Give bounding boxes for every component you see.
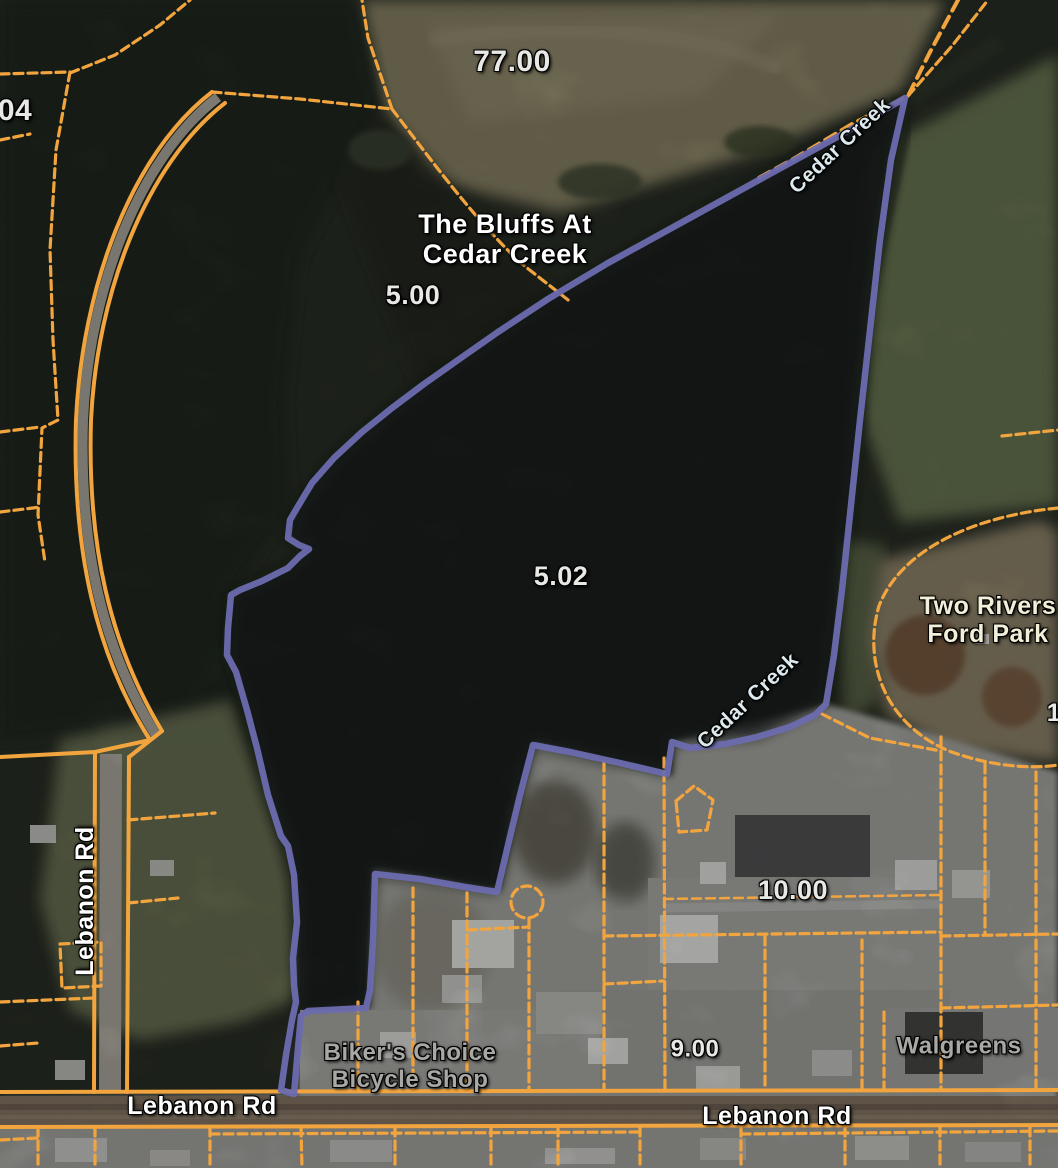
place-label-two-rivers-ford-park: Two Rivers Ford Park [920, 592, 1057, 648]
parcel-label-1-partial: 1 [1047, 699, 1058, 727]
parcel-label-5.02: 5.02 [534, 561, 589, 591]
road-label-lebanon-rd-south-right: Lebanon Rd [702, 1102, 851, 1130]
aerial-parcel-map[interactable]: 77.00 04 The Bluffs At Cedar Creek 5.00 … [0, 0, 1058, 1168]
two-rivers-line2: Ford Park [927, 620, 1048, 648]
lebanon-rd-south-edge-line [0, 1125, 1058, 1127]
place-label-bikers-choice: Biker's Choice Bicycle Shop [324, 1040, 497, 1094]
lebanon-rd-east-edge-line [127, 757, 129, 1092]
parcel-label-77.00: 77.00 [473, 45, 551, 79]
bluffs-line1: The Bluffs At [418, 209, 591, 239]
bluffs-line2: Cedar Creek [423, 239, 588, 269]
parcel-label-5.00: 5.00 [386, 280, 441, 310]
parcel-label-04: 04 [0, 94, 32, 128]
road-label-lebanon-rd-south-left: Lebanon Rd [127, 1092, 276, 1120]
parcel-label-9.00: 9.00 [671, 1037, 720, 1064]
place-label-walgreens: Walgreens [897, 1034, 1022, 1061]
two-rivers-line1: Two Rivers [920, 592, 1057, 620]
map-canvas[interactable] [0, 0, 1058, 1168]
bikers-line1: Biker's Choice [324, 1039, 497, 1066]
bikers-line2: Bicycle Shop [332, 1066, 489, 1093]
place-label-bluffs: The Bluffs At Cedar Creek [418, 209, 591, 269]
parcel-label-10.00: 10.00 [758, 875, 828, 905]
road-label-lebanon-rd-west: Lebanon Rd [71, 826, 99, 975]
